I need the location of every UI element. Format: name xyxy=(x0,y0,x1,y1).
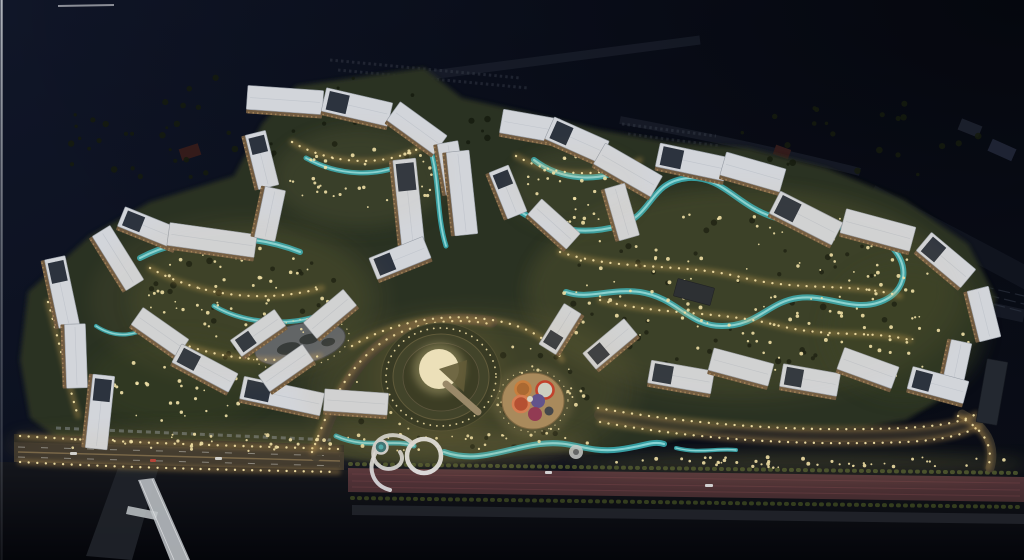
tree-dot xyxy=(90,117,95,122)
tree-dot xyxy=(352,77,355,80)
tree-dot xyxy=(916,173,920,177)
ambient-glow xyxy=(270,125,450,225)
tree-dot xyxy=(975,133,982,140)
tree-dot xyxy=(789,159,796,166)
tree-dot xyxy=(895,152,900,157)
tree-dot xyxy=(169,148,172,151)
tree-dot xyxy=(880,112,885,117)
residential-building xyxy=(60,324,87,389)
tree-dot xyxy=(900,114,906,120)
tree-dot xyxy=(187,86,193,92)
tree-dot xyxy=(337,86,340,89)
tree-dot xyxy=(111,166,118,173)
car xyxy=(545,471,552,474)
garden-light xyxy=(227,405,229,407)
tree-dot xyxy=(270,142,273,145)
garden-light xyxy=(178,379,182,383)
tree-dot xyxy=(786,163,789,166)
tree-dot xyxy=(876,147,883,154)
tree-dot xyxy=(87,147,91,151)
garden-light xyxy=(169,401,172,404)
garden-light xyxy=(961,332,964,335)
tree-dot xyxy=(466,140,470,144)
garden-light xyxy=(205,410,207,412)
tree-dot xyxy=(138,174,143,179)
tree-dot xyxy=(772,114,777,119)
tree-dot xyxy=(411,93,415,97)
tree-dot xyxy=(159,132,165,138)
tree-dot xyxy=(784,142,790,148)
garden-light xyxy=(160,419,163,422)
tree-dot xyxy=(767,156,773,162)
roof-panel xyxy=(93,378,112,402)
garden-light xyxy=(225,414,228,417)
ambient-glow xyxy=(505,145,645,225)
tree-dot xyxy=(173,159,177,163)
garden-light xyxy=(194,397,197,400)
tree-dot xyxy=(78,137,81,140)
tree-dot xyxy=(165,126,168,129)
garden-light xyxy=(135,381,139,385)
tree-dot xyxy=(124,132,128,136)
garden-light xyxy=(203,389,205,391)
tree-dot xyxy=(184,157,190,163)
tree-dot xyxy=(896,116,901,121)
tree-dot xyxy=(74,113,77,116)
tree-dot xyxy=(322,122,326,126)
ambient-glow xyxy=(0,426,600,470)
tree-dot xyxy=(70,162,74,166)
garden-light xyxy=(921,366,923,368)
garden-light xyxy=(180,411,183,414)
tree-dot xyxy=(97,138,102,143)
tree-dot xyxy=(484,135,490,141)
tree-dot xyxy=(74,125,77,128)
tree-dot xyxy=(830,131,835,136)
tree-dot xyxy=(232,146,239,153)
tree-dot xyxy=(68,140,74,146)
bright-sliver xyxy=(58,5,114,6)
ambient-glow xyxy=(570,452,1024,484)
tree-dot xyxy=(814,107,819,112)
tree-dot xyxy=(468,118,474,124)
tree-dot xyxy=(939,143,945,149)
residential-building xyxy=(246,85,324,118)
garden-light xyxy=(176,401,180,405)
tree-dot xyxy=(130,132,134,136)
tree-dot xyxy=(825,122,828,125)
tree-dot xyxy=(901,101,907,107)
tree-dot xyxy=(741,131,745,135)
garden-light xyxy=(115,385,118,388)
photo-edge-line xyxy=(1,0,3,560)
garden-light xyxy=(135,415,137,417)
tree-dot xyxy=(271,150,276,155)
car xyxy=(705,484,713,487)
tree-dot xyxy=(292,129,296,133)
tree-dot xyxy=(130,166,134,170)
tree-dot xyxy=(226,131,230,135)
garden-light xyxy=(132,361,136,365)
tree-dot xyxy=(180,103,186,109)
tree-dot xyxy=(956,140,962,146)
tree-dot xyxy=(212,75,218,81)
tree-dot xyxy=(103,121,109,127)
tree-dot xyxy=(174,121,180,127)
garden-light xyxy=(146,383,150,387)
tree-dot xyxy=(162,99,168,105)
tree-dot xyxy=(854,168,860,174)
garden-light xyxy=(195,387,198,390)
tree-dot xyxy=(812,121,817,126)
aerial-night-masterplan-render xyxy=(0,0,1024,560)
tree-dot xyxy=(189,175,193,179)
tree-dot xyxy=(203,170,208,175)
garden-light xyxy=(184,415,186,417)
tree-dot xyxy=(196,105,201,110)
garden-light xyxy=(120,391,123,394)
tree-dot xyxy=(481,129,484,132)
scene-svg xyxy=(0,0,1024,560)
tree-dot xyxy=(484,116,490,122)
garden-light xyxy=(180,385,183,388)
